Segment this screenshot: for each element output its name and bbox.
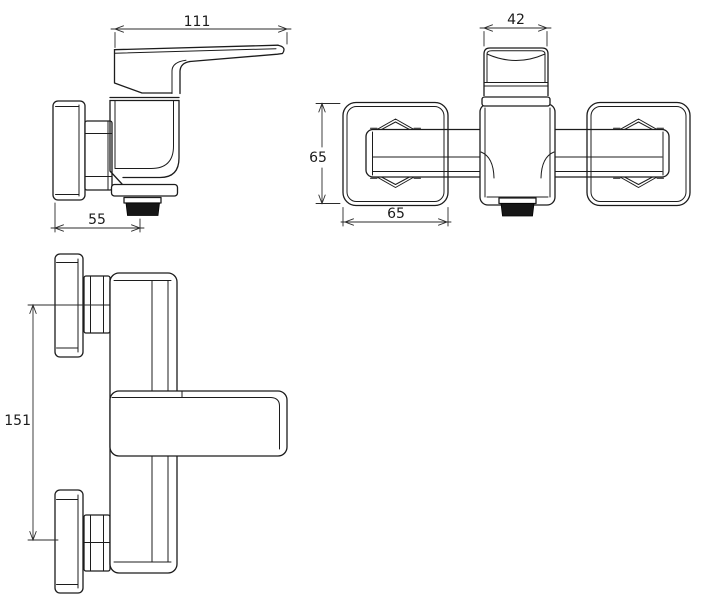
dim-top-handle-width: 42	[480, 12, 551, 46]
side-lever-neck-outer	[180, 62, 190, 94]
top-view: 42 65 65	[309, 12, 690, 226]
top-handle-base	[482, 97, 550, 106]
front-view: 151	[4, 254, 287, 593]
front-top-flange	[55, 254, 83, 357]
top-outlet-collar	[499, 198, 536, 204]
dim-65h-label: 65	[387, 206, 405, 222]
dim-111-label: 111	[184, 14, 211, 30]
front-bottom-flange	[55, 490, 83, 593]
top-outlet-nozzle	[501, 204, 534, 217]
dim-top-flange-width: 65	[341, 206, 451, 226]
top-body	[480, 104, 555, 205]
side-wall-flange	[53, 101, 85, 200]
side-body-bottom-band	[112, 185, 178, 197]
side-outlet-nozzle	[126, 203, 160, 216]
side-cartridge-ring	[110, 98, 179, 101]
dim-side-overall-width: 111	[111, 14, 291, 48]
dim-55-label: 55	[88, 212, 106, 228]
top-handle	[484, 48, 548, 96]
side-cartridge-cap	[115, 50, 173, 93]
side-outlet-collar	[124, 198, 161, 204]
dim-top-flange-height: 65	[309, 104, 340, 204]
dim-42-extension-lines	[484, 32, 547, 47]
side-body-right-edge	[123, 101, 179, 178]
dim-151-label: 151	[4, 413, 31, 429]
side-body-inner-curve	[115, 101, 174, 169]
dim-front-connection-distance: 151	[4, 305, 100, 540]
technical-drawing-page: 111 55	[0, 0, 701, 606]
shower-mixer-drawing: 111 55	[0, 0, 701, 606]
side-lever-neck-inner	[172, 60, 186, 93]
side-view: 111 55	[51, 14, 291, 232]
dim-65v-label: 65	[309, 150, 327, 166]
front-handle	[110, 391, 287, 456]
dim-42-label: 42	[507, 12, 525, 28]
